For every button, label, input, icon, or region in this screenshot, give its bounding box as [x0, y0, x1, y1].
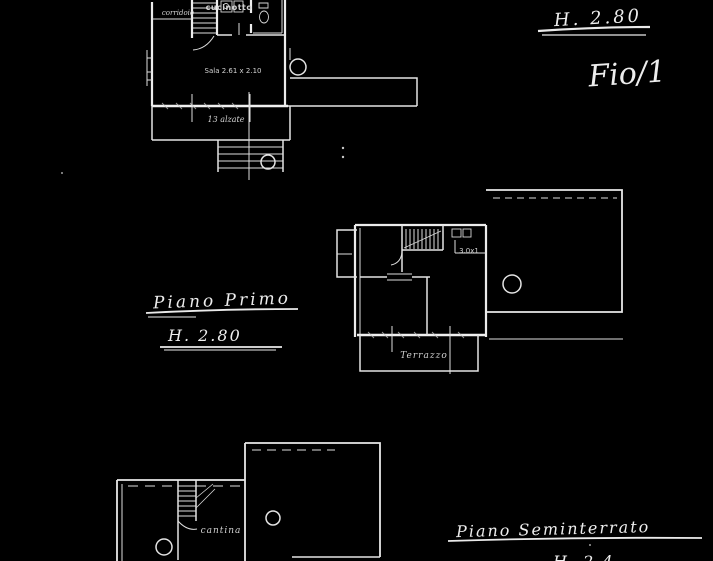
sheet-number: Fio/1: [586, 54, 667, 94]
cellar-label: cantina: [201, 526, 242, 536]
first-floor-annotation: Piano Primo H. 2.80: [146, 289, 298, 350]
bath-fixtures: [452, 229, 471, 237]
kitchen-label: cucinotto: [206, 3, 253, 12]
circle-symbol: [266, 511, 280, 525]
wc-fixtures: [253, 0, 282, 33]
first-floor-stair: [391, 225, 443, 272]
first-floor-plan: [337, 190, 623, 374]
stair-note-label: 13 alzate: [208, 115, 245, 124]
circle-symbol: [261, 155, 275, 169]
circle-symbol: [156, 539, 172, 555]
circle-symbol: [503, 275, 521, 293]
basement-height: H. 2.4: [552, 552, 615, 561]
plan-drawing: corridoio cucinotto Sala 2.61 x 2.10 13 …: [0, 0, 713, 561]
corridor-label: corridoio: [162, 9, 194, 17]
terrace-label: Terrazzo: [400, 351, 448, 361]
small-room-label: 3.0x1: [459, 247, 479, 255]
first-floor-height: H. 2.80: [167, 326, 242, 345]
scan-speck: [61, 172, 63, 174]
dimension-dot: [342, 156, 344, 158]
ground-floor-plan: [61, 0, 417, 180]
dimension-dot: [342, 147, 344, 149]
exterior-stairs: [218, 140, 283, 172]
top-right-annotation: H. 2.80 Fio/1: [538, 6, 667, 95]
scan-speck: [589, 544, 591, 546]
circle-symbol: [290, 59, 306, 75]
basement-annotation: Piano Seminterrato H. 2.4: [448, 517, 702, 561]
living-room-label: Sala 2.61 x 2.10: [205, 67, 262, 75]
floor-plan-sheet: corridoio cucinotto Sala 2.61 x 2.10 13 …: [0, 0, 713, 561]
basement-floor-plan: [117, 443, 591, 561]
